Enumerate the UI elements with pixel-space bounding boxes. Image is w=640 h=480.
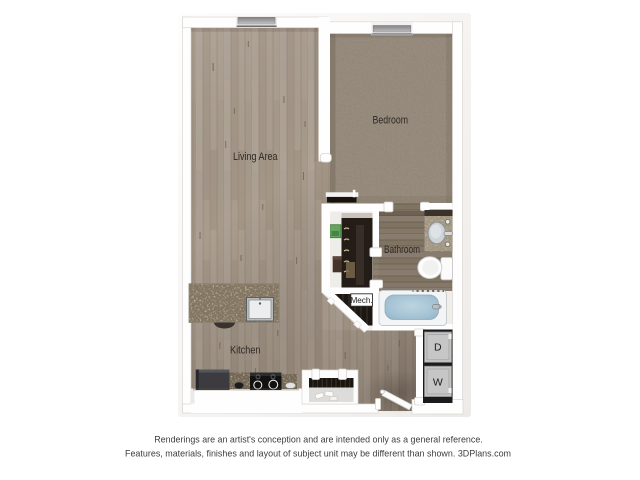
svg-text:Living Area: Living Area	[233, 151, 278, 163]
svg-text:Features, materials, finishes: Features, materials, finishes and layout…	[125, 449, 511, 460]
svg-text:Renderings are an artist's con: Renderings are an artist's conception an…	[154, 434, 483, 445]
svg-text:D: D	[434, 342, 442, 354]
svg-text:Bathroom: Bathroom	[384, 244, 420, 256]
svg-text:Kitchen: Kitchen	[230, 345, 261, 357]
svg-text:Bedroom: Bedroom	[373, 115, 409, 127]
svg-text:Mech.: Mech.	[350, 296, 372, 305]
svg-text:W: W	[433, 377, 443, 389]
